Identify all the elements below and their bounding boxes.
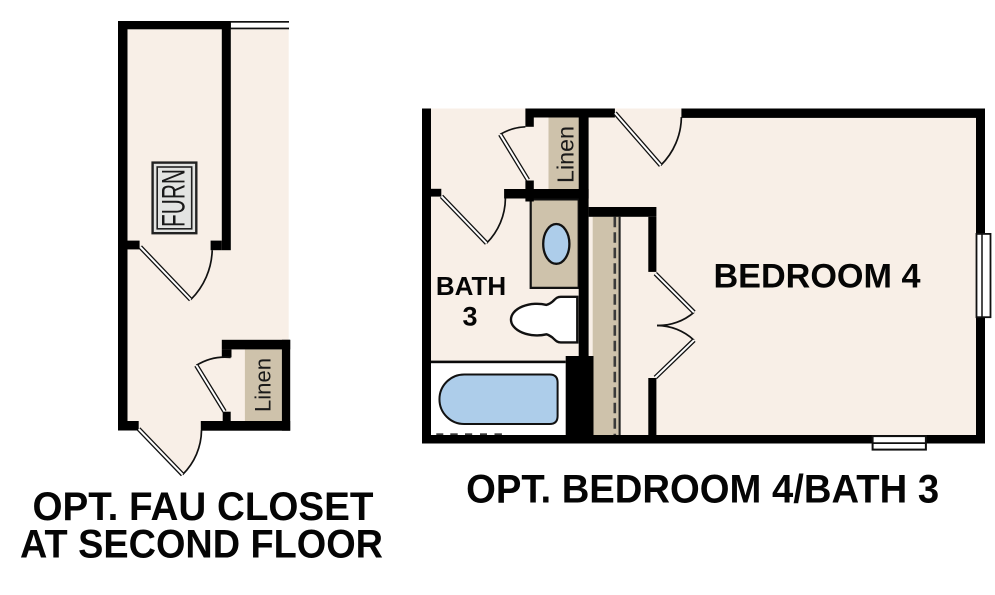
svg-text:FURN: FURN	[156, 169, 192, 227]
svg-text:BATH: BATH	[436, 271, 506, 301]
svg-text:OPT. BEDROOM 4/BATH 3: OPT. BEDROOM 4/BATH 3	[466, 468, 939, 512]
svg-text:AT SECOND FLOOR: AT SECOND FLOOR	[20, 523, 383, 567]
svg-text:3: 3	[462, 302, 477, 332]
svg-text:Linen: Linen	[251, 358, 276, 412]
svg-text:Linen: Linen	[553, 126, 579, 183]
svg-text:BEDROOM 4: BEDROOM 4	[714, 258, 921, 296]
